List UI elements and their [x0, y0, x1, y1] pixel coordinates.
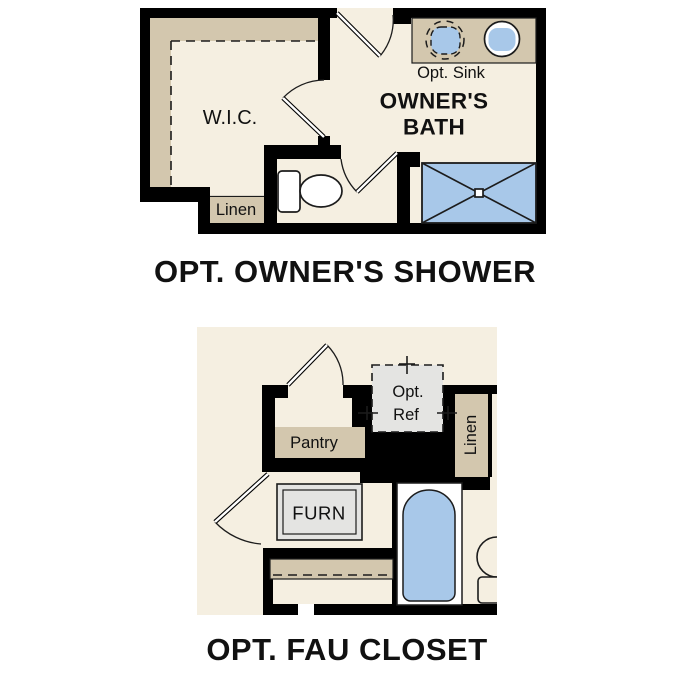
tub-room [397, 483, 462, 605]
floorplan-sheet: W.I.C. Linen Opt. Sink OWNER'S BATH OPT.… [0, 0, 687, 687]
wic-label: W.I.C. [203, 107, 257, 129]
bathtub [403, 490, 455, 601]
linen-label: Linen [462, 415, 480, 455]
opt-ref-label-line2: Ref [393, 406, 419, 424]
opt-ref-label-line1: Opt. [392, 383, 423, 401]
opt-sink-label: Opt. Sink [417, 64, 486, 82]
sink [485, 22, 520, 57]
floor-cutout [140, 202, 198, 234]
owners-bath-label-line1: OWNER'S [380, 89, 489, 114]
furnace-label: FURN [292, 503, 345, 524]
shower-pan [422, 163, 536, 223]
owners-shower-floorplan: W.I.C. Linen Opt. Sink OWNER'S BATH [140, 8, 546, 234]
vanity-counter [412, 18, 536, 63]
lower-shelf [270, 559, 393, 579]
owners-shower-title: OPT. OWNER'S SHOWER [120, 254, 570, 290]
linen-label: Linen [216, 201, 256, 219]
owners-bath-label-line2: BATH [403, 115, 465, 140]
wall-opening [298, 604, 314, 615]
fau-closet-floorplan: Pantry Opt. Ref Linen FURN [197, 327, 497, 615]
pantry-label: Pantry [290, 434, 338, 452]
fau-closet-title: OPT. FAU CLOSET [147, 632, 547, 668]
